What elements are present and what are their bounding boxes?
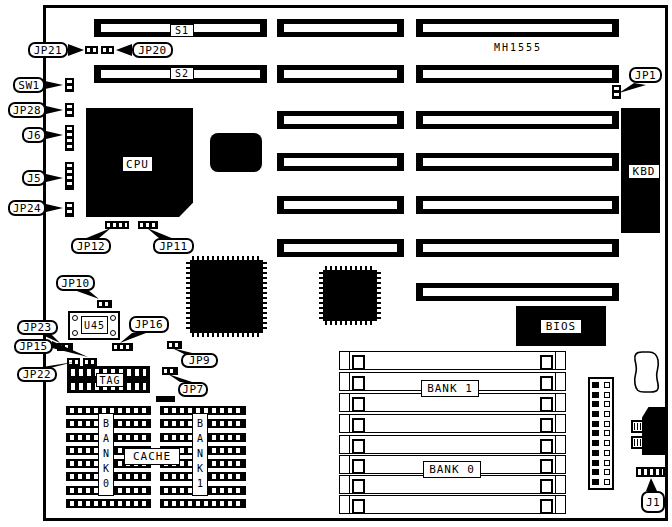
callout-jp28: JP28 bbox=[8, 102, 46, 118]
callout-jp15: JP15 bbox=[14, 339, 53, 354]
callout-tail-j6 bbox=[46, 131, 63, 139]
cache-bank1-vertical-label: B A N K 1 bbox=[192, 413, 208, 496]
callout-jp10: JP10 bbox=[56, 275, 95, 291]
callout-tail-jp16 bbox=[120, 333, 146, 343]
callout-tail-jp15 bbox=[52, 341, 88, 357]
callout-jp16: JP16 bbox=[129, 316, 169, 333]
callout-jp21: JP21 bbox=[28, 42, 68, 58]
callout-j5: J5 bbox=[22, 170, 46, 186]
callout-jp7: JP7 bbox=[178, 382, 208, 397]
callout-tail-sw1 bbox=[45, 81, 63, 89]
callout-tail-jp1 bbox=[619, 83, 646, 93]
callout-jp23: JP23 bbox=[17, 320, 58, 335]
callout-jp24: JP24 bbox=[8, 200, 46, 216]
callout-jp20: JP20 bbox=[132, 42, 173, 58]
cpu-label: CPU bbox=[122, 156, 153, 172]
keyboard-label: KBD bbox=[628, 164, 660, 179]
callout-jp11: JP11 bbox=[153, 238, 194, 254]
bios-label: BIOS bbox=[540, 319, 582, 334]
callout-jp12: JP12 bbox=[71, 238, 111, 254]
callout-tail-j5 bbox=[46, 174, 63, 182]
callout-jp9: JP9 bbox=[181, 353, 218, 368]
simm-bank0-label: BANK 0 bbox=[423, 461, 481, 478]
callout-jp22: JP22 bbox=[17, 367, 57, 382]
callout-jp1: JP1 bbox=[629, 67, 662, 83]
simm-bank1-label: BANK 1 bbox=[421, 380, 479, 397]
slot-label-s1: S1 bbox=[170, 24, 194, 37]
cache-bank0-vertical-label: B A N K 0 bbox=[98, 413, 114, 496]
callout-tail-jp10 bbox=[74, 290, 99, 299]
callout-j1: J1 bbox=[641, 491, 665, 513]
callout-tail-jp28 bbox=[46, 106, 63, 114]
callout-tail-jp20 bbox=[116, 44, 132, 56]
callout-tail-jp7 bbox=[168, 374, 192, 382]
slot-label-s2: S2 bbox=[170, 67, 194, 80]
tag-label: TAG bbox=[96, 373, 124, 387]
motherboard-diagram: MH1555 S1 S2 CPU KBD BIOS U45 TAG bbox=[0, 0, 672, 527]
callout-sw1: SW1 bbox=[13, 77, 45, 93]
callout-tail-j1 bbox=[646, 478, 657, 491]
u45-label: U45 bbox=[81, 316, 108, 334]
cache-label: CACHE bbox=[124, 448, 180, 465]
callout-j6: J6 bbox=[22, 127, 46, 143]
callout-tail-jp24 bbox=[46, 204, 63, 212]
callout-tail-jp21 bbox=[68, 44, 84, 56]
